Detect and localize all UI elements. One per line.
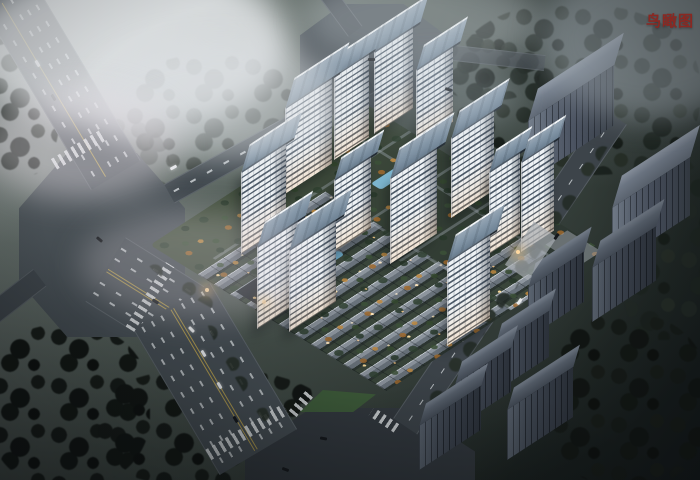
fog-cloud [80,210,320,320]
entrance-light-glow [516,250,520,254]
fog-cloud [360,60,520,130]
view-label: 鸟瞰图 [646,10,694,31]
aerial-render-canvas: 鸟瞰图 [0,0,700,480]
